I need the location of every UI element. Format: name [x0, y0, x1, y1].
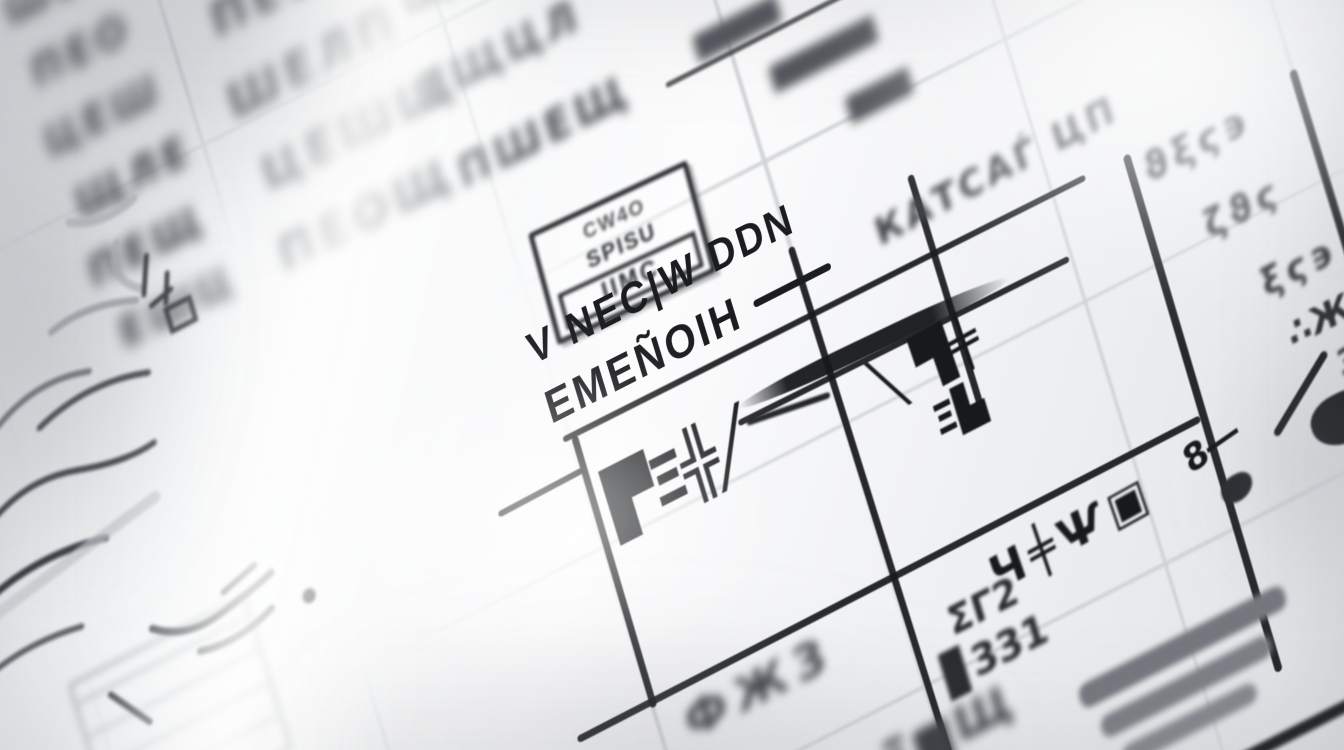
paper-photo: CW4O SPISU IIMC V NEC|W DDN EMEÑOIH ▛Ξ╬╱… [0, 0, 1344, 750]
paper-sheet: CW4O SPISU IIMC V NEC|W DDN EMEÑOIH ▛Ξ╬╱… [0, 0, 1344, 750]
